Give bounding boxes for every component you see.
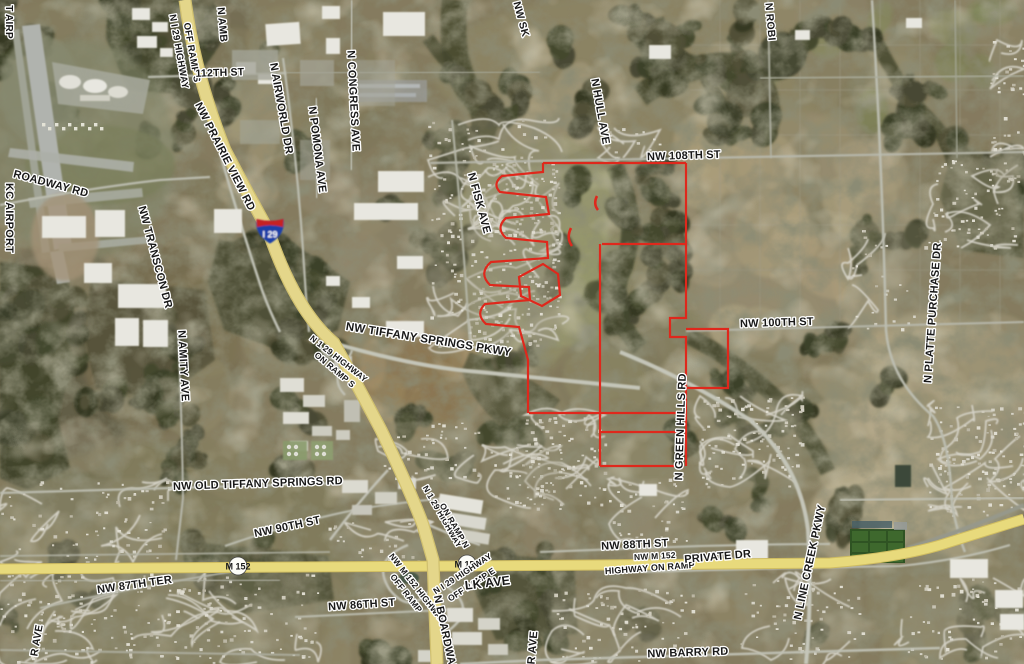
svg-text:KC AIRPORT: KC AIRPORT xyxy=(3,183,15,253)
svg-text:T AIRP: T AIRP xyxy=(3,5,14,39)
svg-text:M 152: M 152 xyxy=(225,562,250,572)
svg-text:I 29: I 29 xyxy=(262,230,277,240)
svg-text:112TH ST: 112TH ST xyxy=(195,66,245,80)
